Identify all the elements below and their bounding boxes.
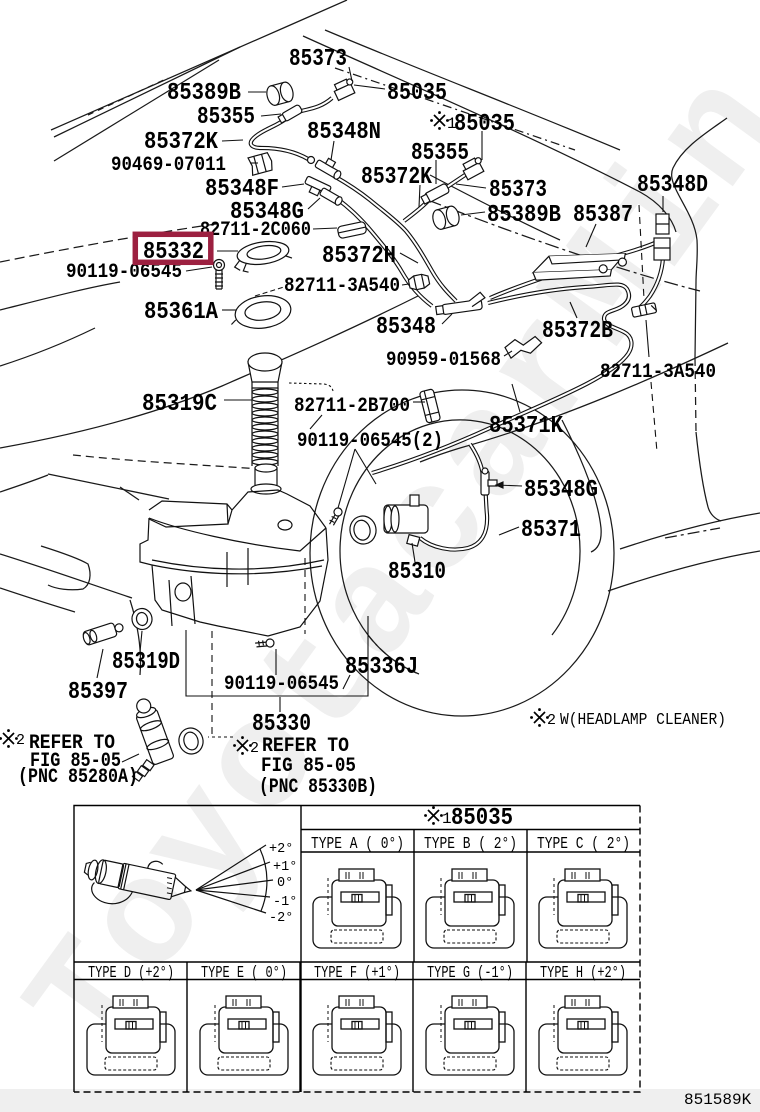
svg-text:85035: 85035: [451, 805, 513, 832]
svg-text:1: 1: [447, 115, 457, 133]
svg-text:85348D: 85348D: [637, 172, 708, 199]
svg-text:90119-06545: 90119-06545: [224, 673, 339, 696]
svg-text:85372K: 85372K: [144, 129, 219, 156]
svg-text:+1°: +1°: [273, 860, 297, 875]
svg-text:85355: 85355: [197, 104, 255, 131]
svg-text:TYPE B ( 2°): TYPE B ( 2°): [424, 835, 517, 854]
svg-text:85330: 85330: [252, 711, 311, 738]
svg-text:90959-01568: 90959-01568: [386, 349, 501, 372]
svg-text:85361A: 85361A: [144, 299, 219, 326]
svg-text:85348N: 85348N: [307, 119, 381, 146]
svg-text:85371K: 85371K: [489, 413, 564, 440]
svg-text:85373: 85373: [289, 46, 347, 73]
svg-text:85319C: 85319C: [142, 391, 217, 418]
svg-text:W(HEADLAMP CLEANER): W(HEADLAMP CLEANER): [560, 711, 726, 730]
svg-text:82711-2B700: 82711-2B700: [294, 395, 410, 418]
svg-text:85397: 85397: [68, 679, 128, 706]
svg-text:85035: 85035: [454, 111, 515, 138]
svg-text:85355: 85355: [411, 140, 469, 167]
svg-text:85348G: 85348G: [524, 477, 598, 504]
svg-text:85310: 85310: [388, 559, 446, 586]
svg-text:2: 2: [547, 712, 556, 729]
svg-text:2: 2: [16, 732, 25, 749]
svg-text:85389B: 85389B: [167, 80, 241, 107]
svg-text:82711-2C060: 82711-2C060: [200, 219, 311, 242]
svg-text:82711-3A540: 82711-3A540: [600, 361, 716, 384]
svg-text:2: 2: [250, 740, 259, 757]
svg-text:TYPE H (+2°): TYPE H (+2°): [540, 964, 626, 983]
svg-text:FIG 85-05: FIG 85-05: [261, 755, 356, 778]
svg-text:TYPE D (+2°): TYPE D (+2°): [88, 964, 174, 983]
svg-text:85372H: 85372H: [322, 243, 396, 270]
svg-text:85389B: 85389B: [487, 202, 561, 229]
svg-text:(PNC 85330B): (PNC 85330B): [259, 776, 377, 799]
svg-text:1: 1: [442, 810, 452, 828]
svg-text:TYPE E ( 0°): TYPE E ( 0°): [201, 964, 287, 983]
svg-text:-1°: -1°: [273, 895, 297, 910]
svg-text:0°: 0°: [277, 876, 293, 891]
svg-text:85387: 85387: [573, 202, 633, 229]
svg-text:85373: 85373: [489, 177, 547, 204]
svg-text:TYPE A ( 0°): TYPE A ( 0°): [311, 835, 404, 854]
svg-text:90469-07011: 90469-07011: [111, 154, 226, 177]
svg-text:TYPE G (-1°): TYPE G (-1°): [427, 964, 513, 983]
svg-text:85348: 85348: [376, 314, 436, 341]
svg-text:90119-06545(2): 90119-06545(2): [297, 430, 443, 453]
svg-text:82711-3A540: 82711-3A540: [284, 275, 400, 298]
svg-text:85372K: 85372K: [361, 164, 432, 191]
svg-text:85371: 85371: [521, 517, 581, 544]
svg-text:TYPE C ( 2°): TYPE C ( 2°): [537, 835, 630, 854]
svg-text:(PNC 85280A): (PNC 85280A): [18, 766, 138, 789]
svg-text:TYPE F (+1°): TYPE F (+1°): [314, 964, 400, 983]
svg-text:85336J: 85336J: [345, 654, 418, 681]
svg-text:85035: 85035: [387, 80, 447, 107]
svg-text:85372B: 85372B: [542, 318, 613, 345]
svg-text:-2°: -2°: [269, 911, 293, 926]
svg-text:+2°: +2°: [269, 842, 293, 857]
svg-text:85319D: 85319D: [112, 649, 180, 676]
svg-text:851589K: 851589K: [684, 1091, 752, 1109]
